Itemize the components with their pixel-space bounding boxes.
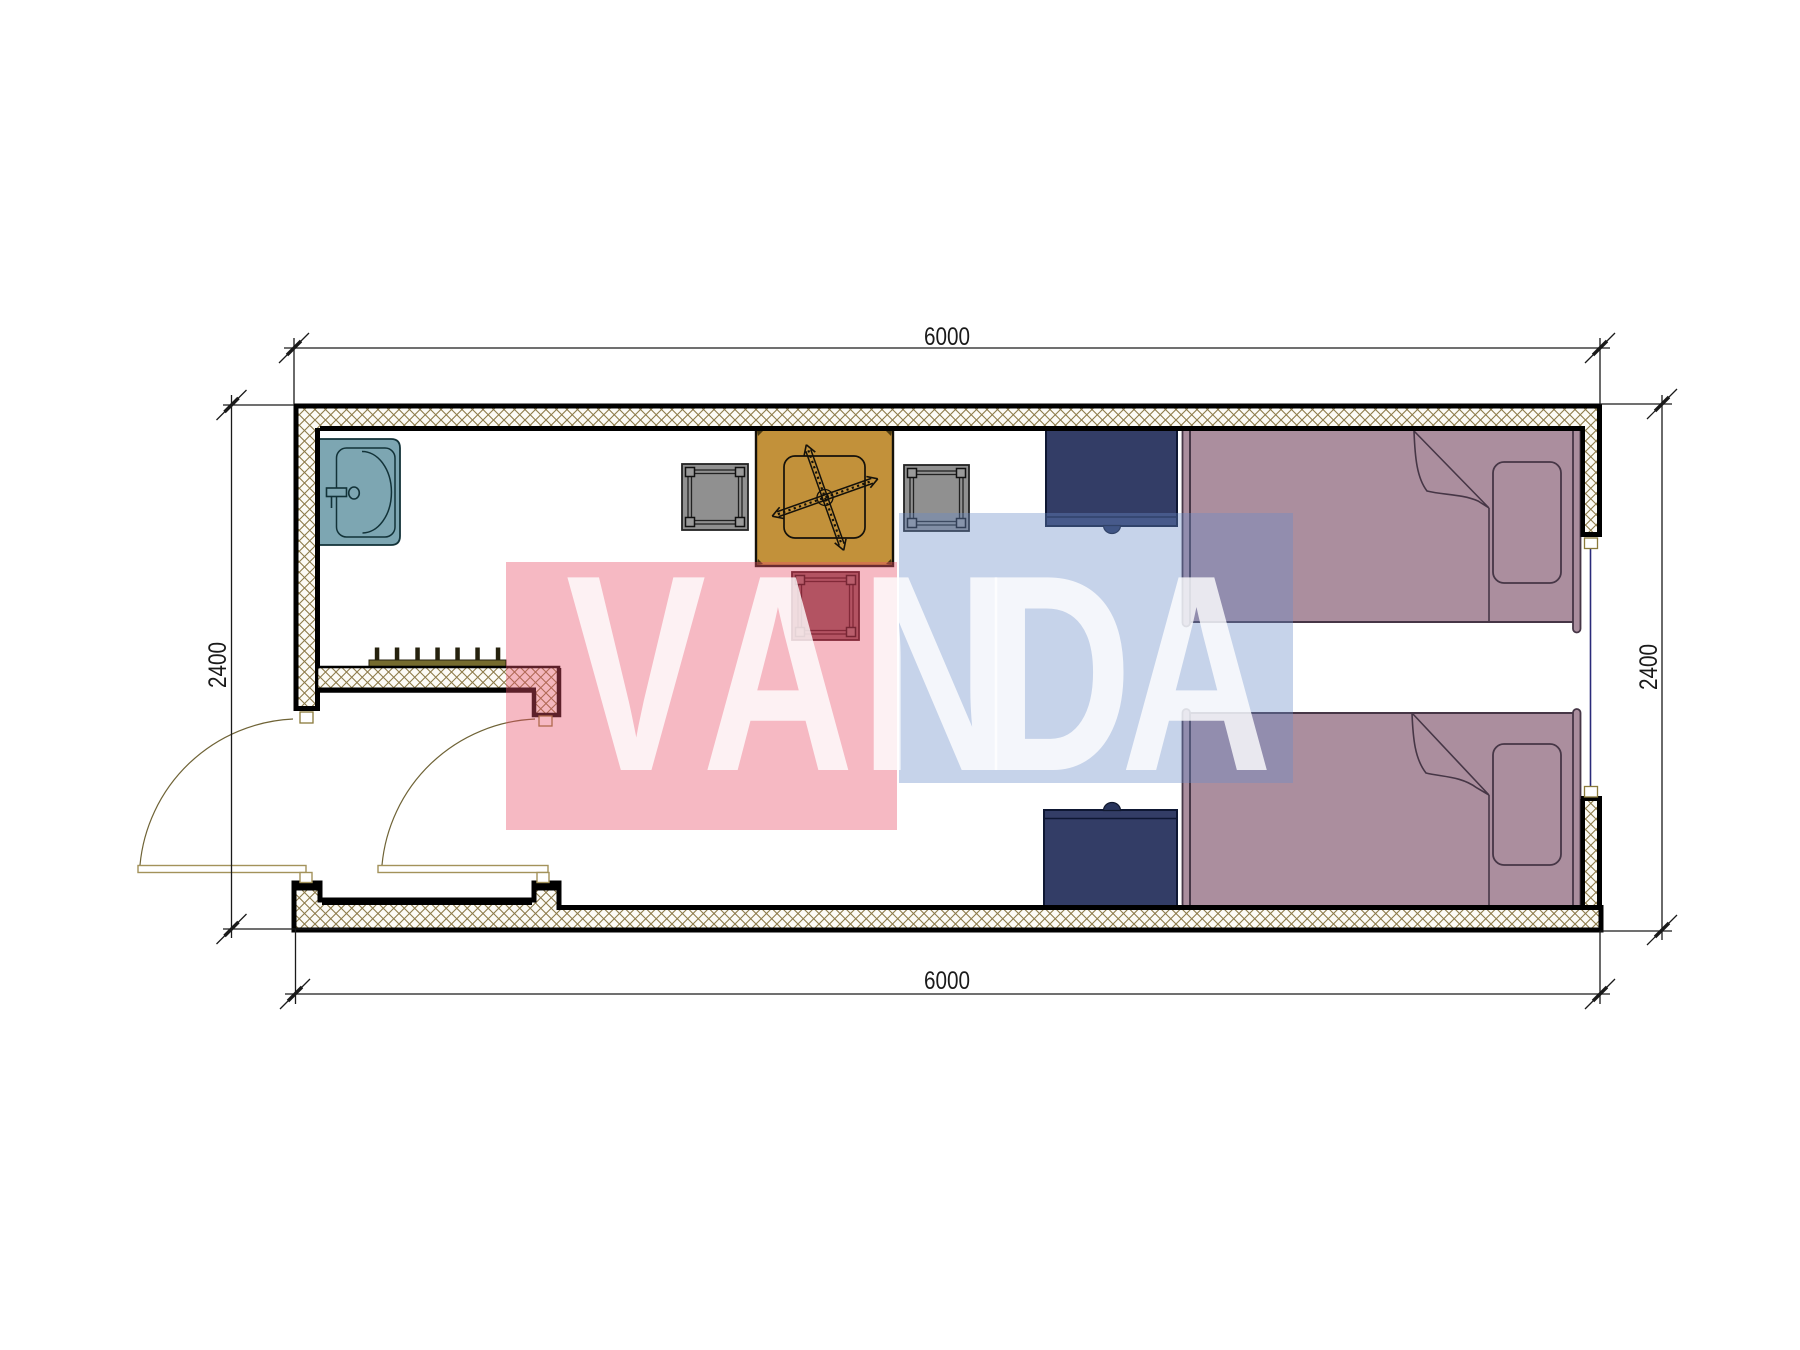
svg-text:2400: 2400 [204, 642, 232, 688]
svg-text:2400: 2400 [1635, 644, 1663, 690]
svg-text:6000: 6000 [924, 323, 970, 351]
svg-text:D: D [981, 518, 1133, 830]
svg-text:V: V [566, 518, 706, 830]
svg-text:A: A [702, 518, 854, 830]
svg-text:A: A [1121, 518, 1273, 830]
svg-text:6000: 6000 [924, 967, 970, 995]
